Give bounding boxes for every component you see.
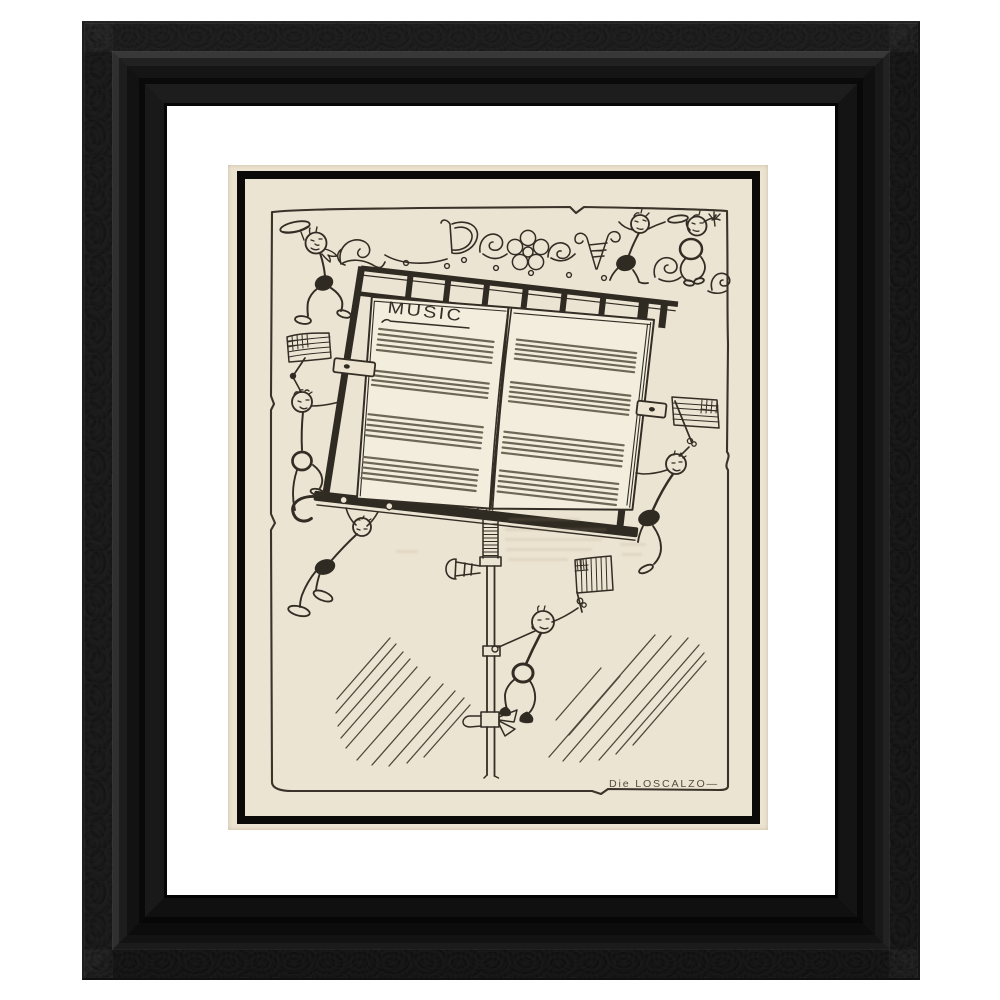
svg-text:Die LOSCALZO—: Die LOSCALZO— [609,778,719,790]
